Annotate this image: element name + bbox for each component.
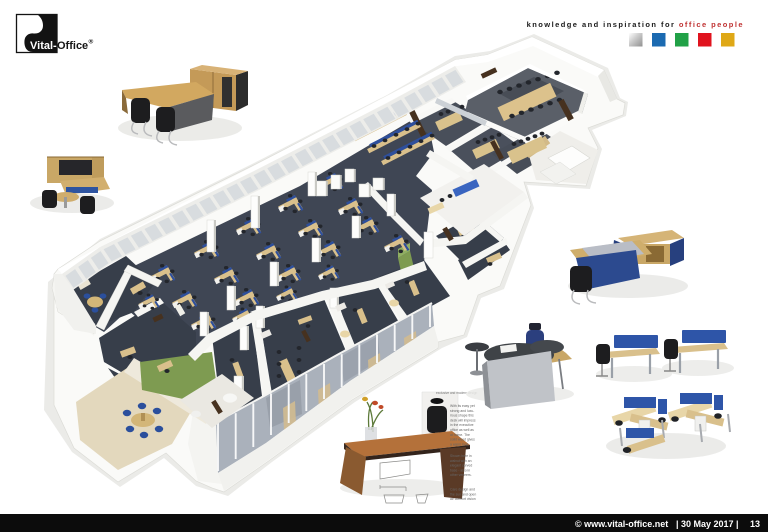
- svg-text:© www.vital-office.net: © www.vital-office.net: [575, 519, 668, 529]
- svg-text:Shown here in: Shown here in: [450, 454, 472, 458]
- svg-text:Care design and: Care design and: [450, 488, 475, 492]
- svg-text:With its easy yet: With its easy yet: [450, 404, 475, 408]
- svg-text:other veneers.: other veneers.: [450, 473, 472, 477]
- svg-text:13: 13: [750, 519, 760, 529]
- svg-text:base - also in: base - also in: [450, 468, 470, 472]
- svg-text:elegant curved: elegant curved: [450, 464, 472, 468]
- svg-text:solid wood gives: solid wood gives: [450, 438, 475, 442]
- svg-text:strong and luxu-: strong and luxu-: [450, 409, 474, 413]
- svg-text:the sun and open: the sun and open: [450, 492, 476, 496]
- svg-text:office as well as: office as well as: [450, 428, 474, 432]
- svg-text:Vital-: Vital-: [30, 40, 57, 52]
- svg-text:a warm look.: a warm look.: [450, 442, 469, 446]
- svg-text:Office: Office: [57, 40, 88, 52]
- svg-text:rious shape this: rious shape this: [450, 414, 474, 418]
- svg-text:walnut with an: walnut with an: [450, 459, 472, 463]
- svg-text:air comfort vision: air comfort vision: [450, 497, 476, 501]
- svg-text:®: ®: [89, 38, 94, 46]
- svg-text:desk will impress: desk will impress: [450, 418, 476, 422]
- svg-text:at home. The: at home. The: [450, 433, 470, 437]
- svg-text:knowledge and inspiration for: knowledge and inspiration for office peo…: [527, 20, 744, 29]
- svg-text:| 30 May 2017 |: | 30 May 2017 |: [676, 519, 739, 529]
- svg-text:in the executive: in the executive: [450, 423, 474, 427]
